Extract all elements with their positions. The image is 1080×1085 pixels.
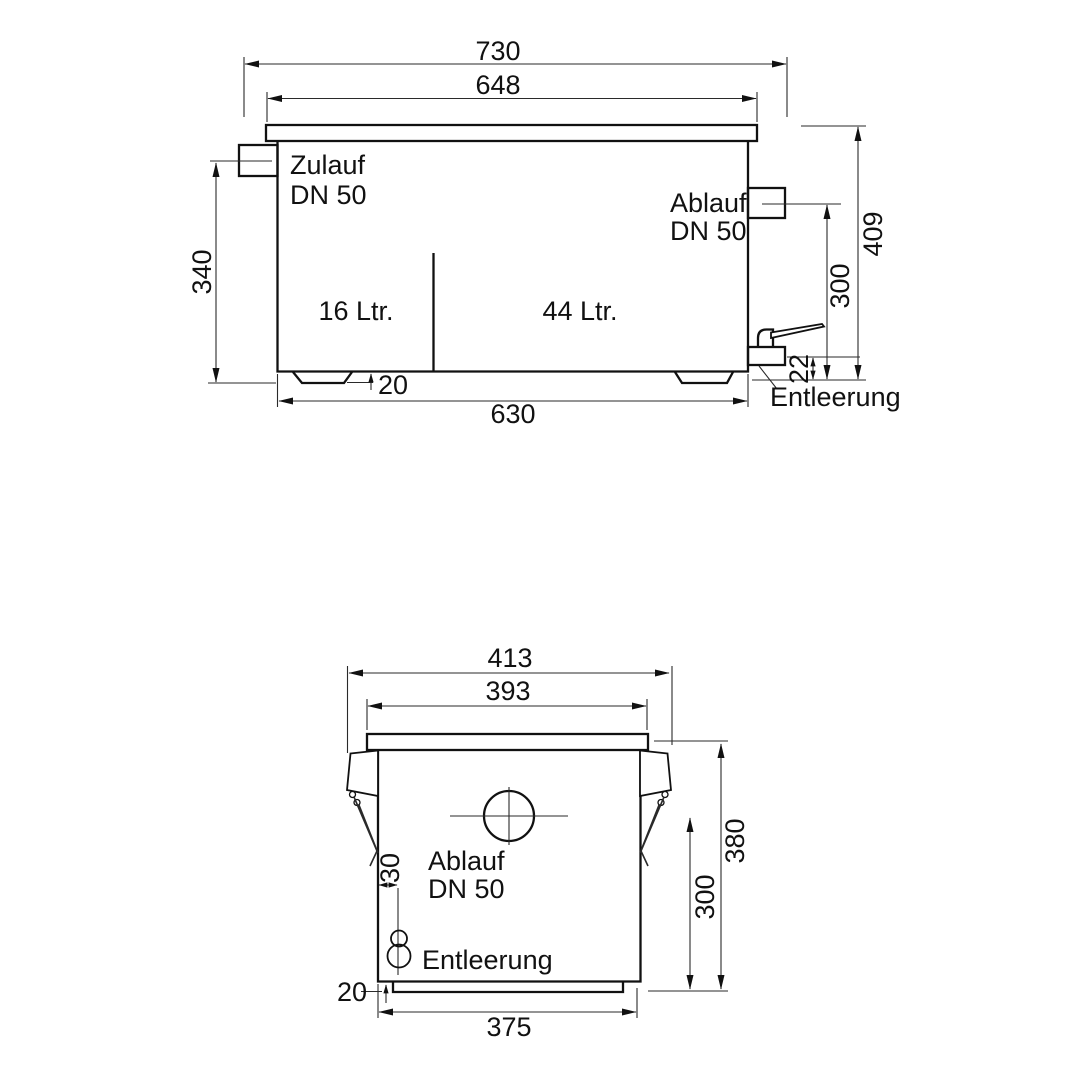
side-chamber-large-label: 44 Ltr. bbox=[542, 296, 617, 326]
front-outlet-crosshair bbox=[450, 787, 568, 845]
side-dim-730-label: 730 bbox=[475, 36, 520, 66]
front-dim-20-label: 20 bbox=[337, 977, 367, 1007]
front-dim-393-label: 393 bbox=[485, 676, 530, 706]
side-view: 730 648 340 630 409 300 22 20 Zulauf DN … bbox=[187, 36, 901, 429]
front-outlet-label-line1: Ablauf bbox=[428, 846, 505, 876]
side-dim-630-label: 630 bbox=[490, 399, 535, 429]
front-right-clamp-body bbox=[640, 751, 671, 797]
side-dim-648-label: 648 bbox=[475, 70, 520, 100]
front-dim-380-label: 380 bbox=[720, 818, 750, 863]
front-dim-413-label: 413 bbox=[487, 643, 532, 673]
side-outlet-label-line2: DN 50 bbox=[670, 216, 747, 246]
front-right-clamp-strap bbox=[640, 797, 664, 866]
front-drain-label: Entleerung bbox=[422, 945, 553, 975]
front-outlet-label-line2: DN 50 bbox=[428, 874, 505, 904]
side-dim-20-label: 20 bbox=[378, 370, 408, 400]
front-view: 413 393 380 300 30 20 375 Ablauf DN 50 E… bbox=[337, 643, 750, 1042]
front-left-clamp-body bbox=[347, 751, 378, 797]
side-left-foot bbox=[293, 372, 352, 383]
front-right-clamp-hinge-pin-1 bbox=[662, 792, 668, 798]
side-dim-300-label: 300 bbox=[825, 263, 855, 308]
front-left-clamp-hinge-pin-1 bbox=[350, 792, 356, 798]
front-lid bbox=[367, 734, 648, 750]
technical-drawing-grease-separator: 730 648 340 630 409 300 22 20 Zulauf DN … bbox=[0, 0, 1080, 1080]
side-inlet-label-line1: Zulauf bbox=[290, 150, 366, 180]
side-drain-valve-lever bbox=[771, 324, 824, 338]
side-drain-spout bbox=[748, 347, 785, 365]
front-dim-30-label: 30 bbox=[375, 853, 405, 883]
side-dim-22-label: 22 bbox=[784, 354, 814, 384]
front-base-plate bbox=[393, 982, 623, 992]
front-dim-300-label: 300 bbox=[690, 874, 720, 919]
side-outlet-label-line1: Ablauf bbox=[670, 188, 747, 218]
side-lid bbox=[266, 125, 757, 141]
front-dim-375-label: 375 bbox=[486, 1012, 531, 1042]
side-drain-label: Entleerung bbox=[770, 382, 901, 412]
side-extension-lines bbox=[208, 57, 866, 407]
front-drain-keyhole-bottom bbox=[388, 945, 411, 968]
side-right-foot bbox=[675, 372, 733, 383]
side-dim-340-label: 340 bbox=[187, 249, 217, 294]
side-chamber-small-label: 16 Ltr. bbox=[318, 296, 393, 326]
side-dim-409-label: 409 bbox=[858, 211, 888, 256]
drawing-svg: 730 648 340 630 409 300 22 20 Zulauf DN … bbox=[0, 0, 1080, 1080]
side-inlet-label-line2: DN 50 bbox=[290, 180, 367, 210]
side-outlet-pipe bbox=[748, 188, 785, 218]
